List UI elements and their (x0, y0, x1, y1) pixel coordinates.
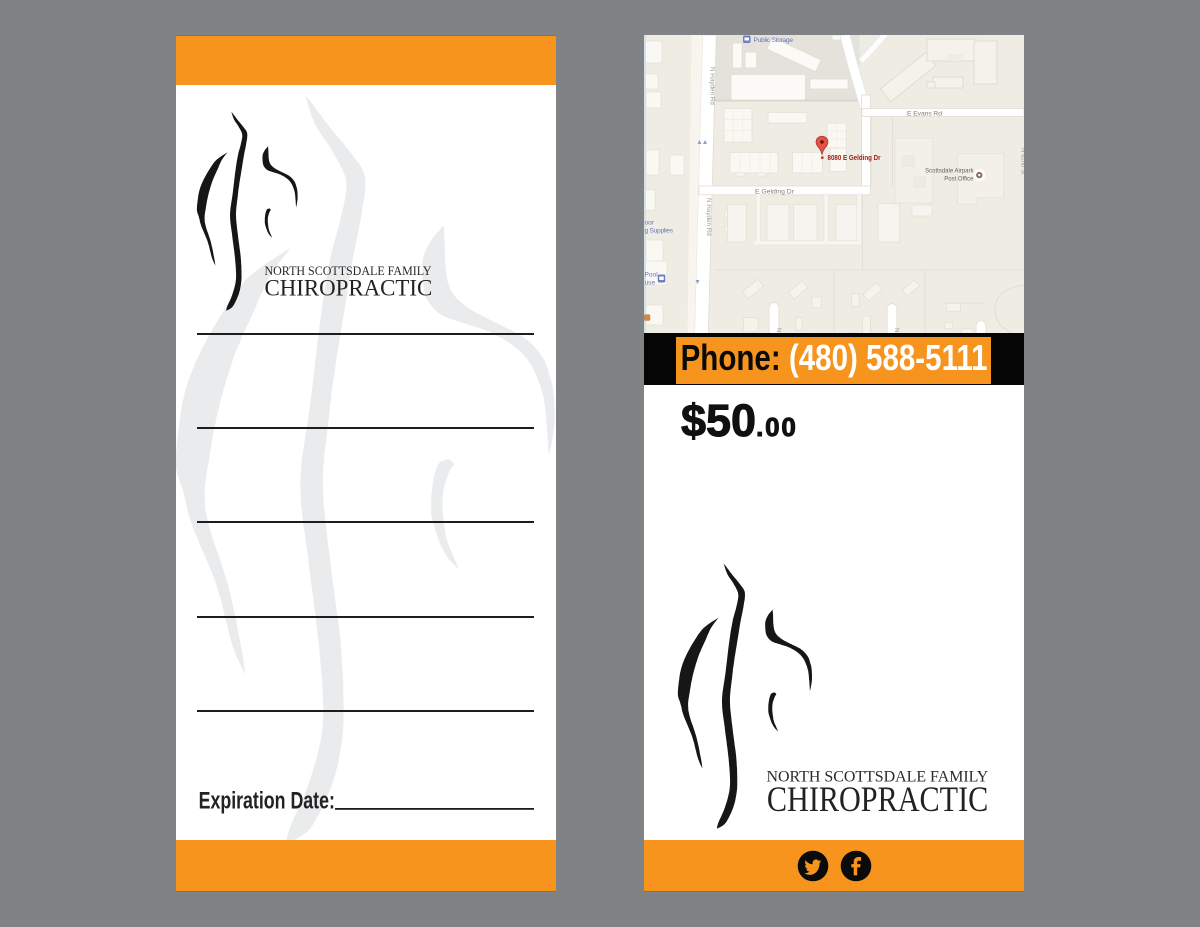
svg-text:use: use (645, 280, 656, 287)
svg-text:Scottsdale Airpark: Scottsdale Airpark (925, 169, 974, 175)
svg-text:CHIROPRACTIC: CHIROPRACTIC (767, 779, 988, 819)
svg-text:8080 E Gelding Dr: 8080 E Gelding Dr (828, 153, 881, 162)
svg-text:Phone: (480) 588-5111: Phone: (480) 588-5111 (681, 337, 988, 378)
svg-text:Expiration Date:: Expiration Date: (199, 788, 335, 815)
svg-text:Pool: Pool (645, 272, 659, 279)
svg-text:Post Office: Post Office (944, 177, 974, 183)
svg-text:N Hayden Rd: N Hayden Rd (709, 67, 716, 105)
svg-text:E Gelding Dr: E Gelding Dr (755, 189, 795, 196)
svg-text:CHIROPRACTIC: CHIROPRACTIC (265, 275, 433, 301)
svg-text:Public Storage: Public Storage (754, 37, 794, 44)
svg-text:N: N (893, 328, 899, 332)
svg-text:g Supplies: g Supplies (645, 228, 674, 235)
svg-text:N 82nd St: N 82nd St (1020, 148, 1025, 175)
svg-text:E Evans Rd: E Evans Rd (907, 111, 942, 118)
svg-text:N Hayden Rd: N Hayden Rd (705, 198, 712, 236)
svg-text:$50.00: $50.00 (681, 395, 798, 446)
svg-text:oor: oor (645, 220, 655, 227)
svg-text:N: N (775, 328, 781, 332)
